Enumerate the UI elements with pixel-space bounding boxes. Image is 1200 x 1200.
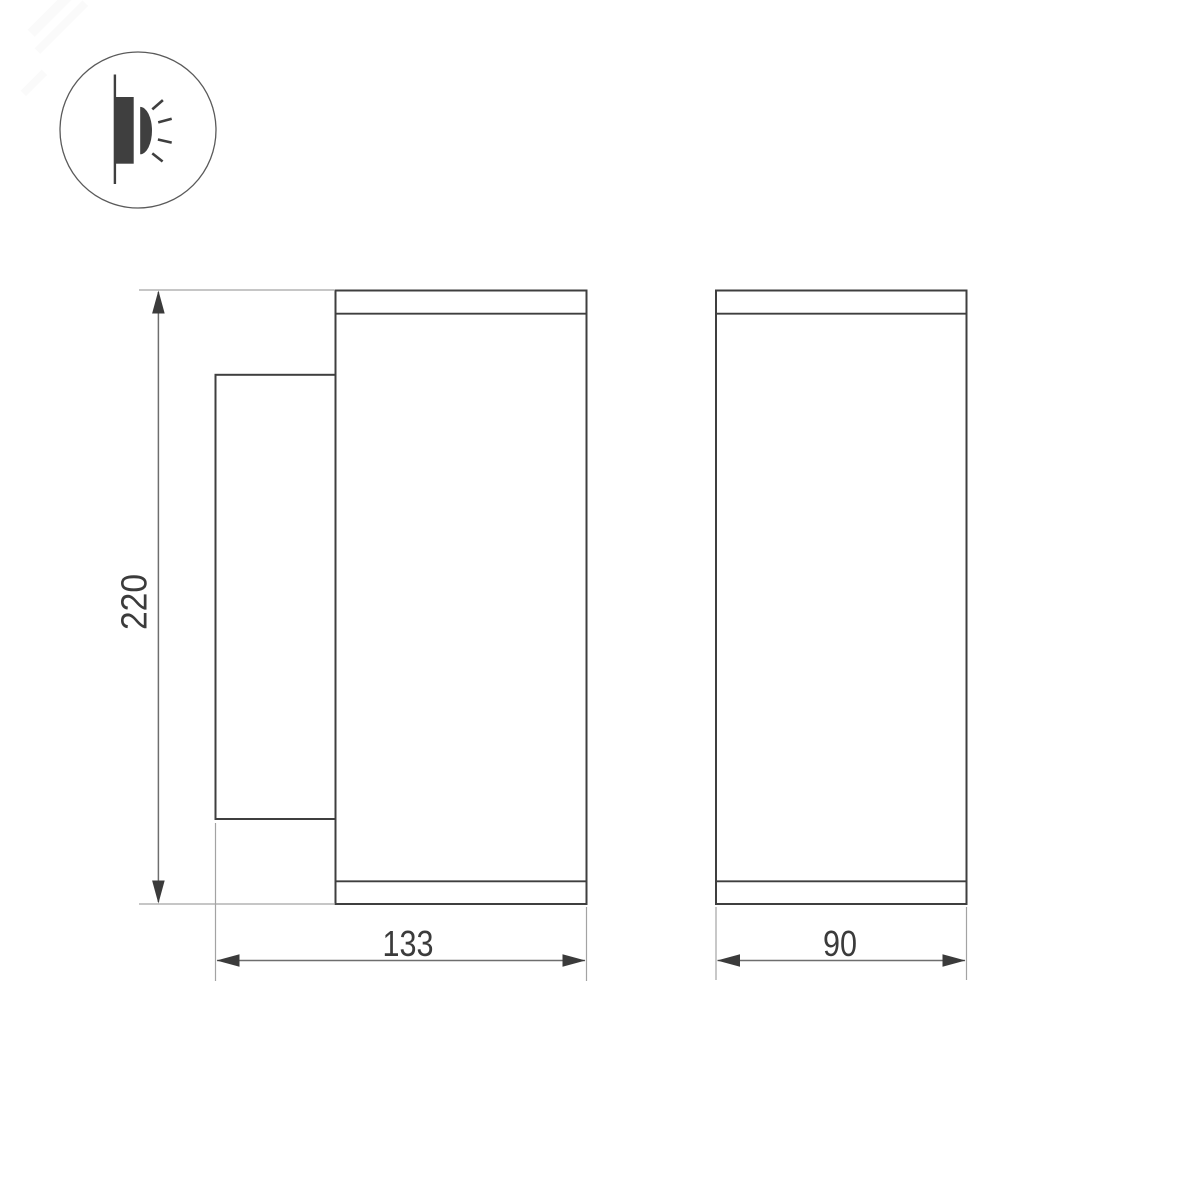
svg-text:220: 220 xyxy=(114,574,155,630)
svg-text:133: 133 xyxy=(383,923,434,964)
svg-text:90: 90 xyxy=(823,923,857,964)
